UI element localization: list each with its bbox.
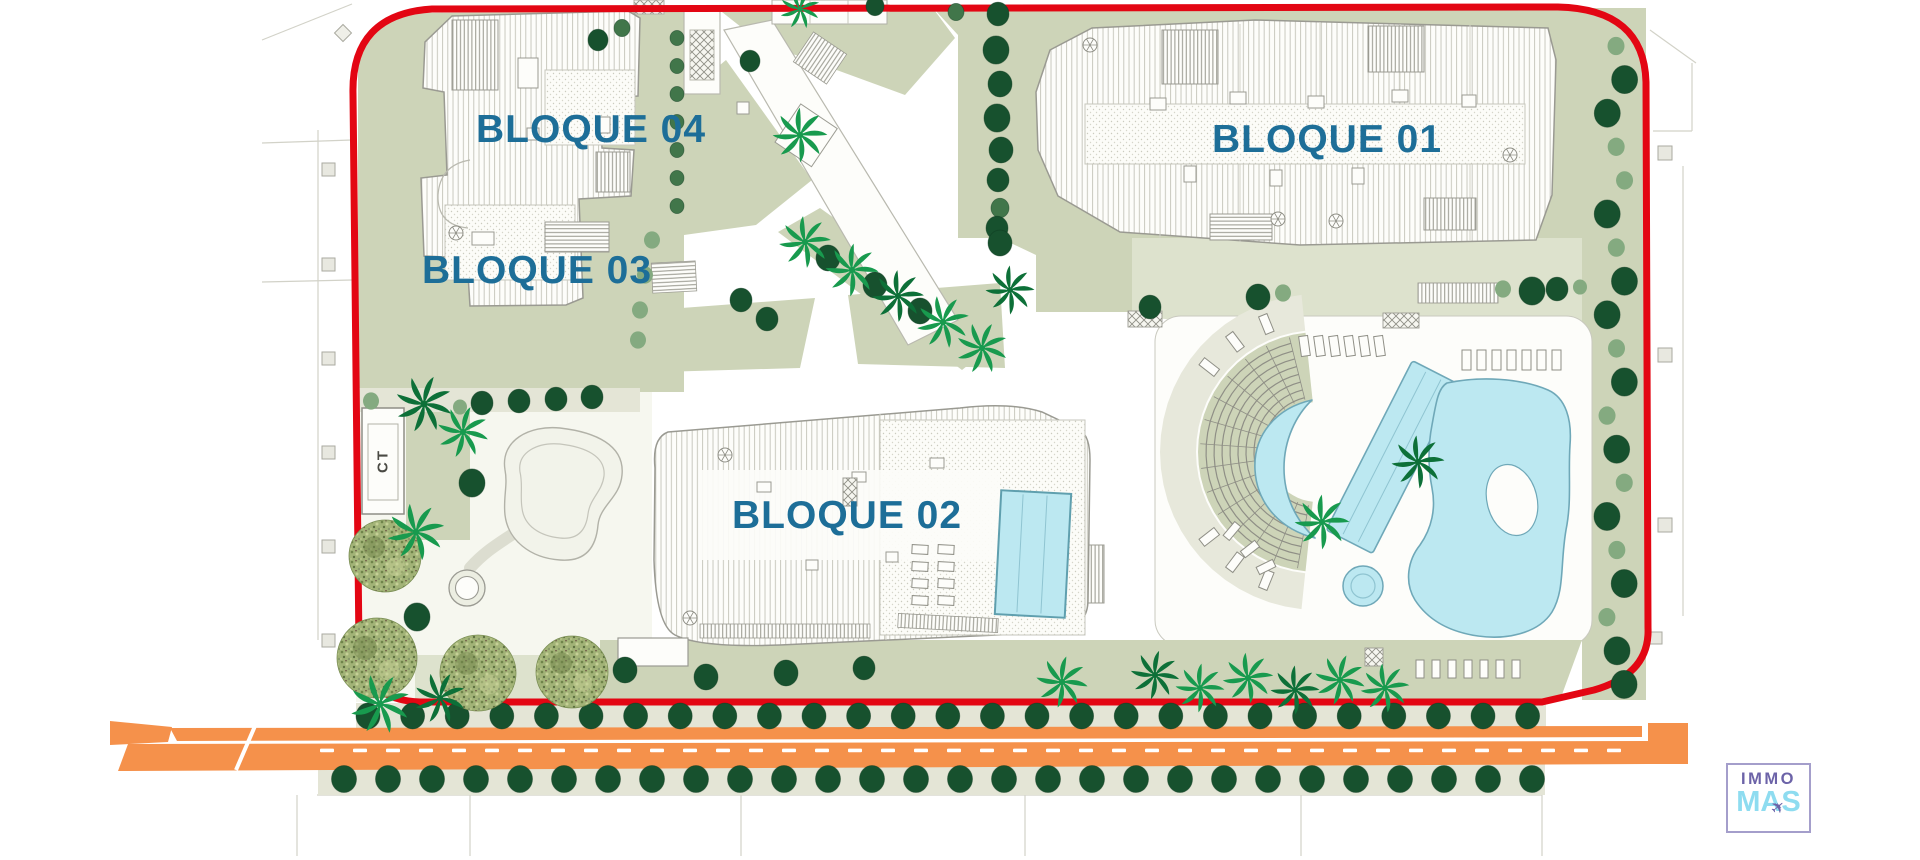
- tree-icon: [670, 170, 684, 185]
- tree-icon: [1025, 703, 1049, 729]
- tree-icon: [728, 766, 753, 793]
- spiral-stair: [683, 611, 697, 625]
- survey-square: [1658, 348, 1672, 362]
- tree-icon: [980, 703, 1004, 729]
- tree-icon: [1124, 766, 1149, 793]
- tree-icon: [579, 703, 603, 729]
- tree-icon: [1608, 541, 1625, 559]
- tree-icon: [1256, 766, 1281, 793]
- tree-icon: [1594, 99, 1620, 127]
- tree-icon: [1300, 766, 1325, 793]
- tree-icon: [670, 198, 684, 213]
- tree-icon: [632, 301, 648, 318]
- lane-dash: [1574, 749, 1588, 753]
- tree-icon: [644, 231, 660, 248]
- roof-box: [518, 58, 538, 88]
- tree-icon: [1594, 301, 1620, 329]
- survey-diamond: [335, 25, 352, 42]
- tree-icon: [1598, 608, 1615, 626]
- olive-tree-icon: [363, 536, 385, 558]
- west-stairs: [651, 261, 697, 293]
- tree-icon: [624, 703, 648, 729]
- tree-icon: [987, 168, 1009, 192]
- tree-icon: [1616, 474, 1633, 492]
- stairwell: [545, 222, 609, 252]
- tree-icon: [1608, 339, 1625, 357]
- tree-icon: [1426, 703, 1450, 729]
- sun-lounger: [1507, 350, 1516, 370]
- tree-icon: [1616, 171, 1633, 189]
- tree-icon: [908, 298, 932, 324]
- sun-lounger: [912, 562, 928, 572]
- lane-dash: [1211, 749, 1225, 753]
- tree-icon: [363, 392, 379, 409]
- lane-dash: [320, 749, 334, 753]
- tree-icon: [713, 703, 737, 729]
- lane-dash: [1607, 749, 1621, 753]
- lane-dash: [947, 749, 961, 753]
- tree-icon: [471, 391, 493, 415]
- sun-lounger: [1522, 350, 1531, 370]
- tree-icon: [670, 58, 684, 73]
- lane-dash: [1475, 749, 1489, 753]
- lane-dash: [1079, 749, 1093, 753]
- lane-dash: [518, 749, 532, 753]
- sun-lounger: [1416, 660, 1424, 678]
- tree-icon: [420, 766, 445, 793]
- survey-square: [1658, 518, 1672, 532]
- lane-dash: [1145, 749, 1159, 753]
- sun-lounger: [912, 579, 928, 589]
- tree-icon: [613, 657, 637, 683]
- tree-icon: [1573, 279, 1587, 294]
- survey-square: [1658, 146, 1672, 160]
- tree-icon: [1248, 703, 1272, 729]
- lane-dash: [650, 749, 664, 753]
- tree-icon: [1212, 766, 1237, 793]
- tree-icon: [453, 399, 467, 414]
- tree-icon: [1036, 766, 1061, 793]
- lane-dash: [1442, 749, 1456, 753]
- label-bloque-02: BLOQUE 02: [732, 496, 962, 535]
- spiral-stair: [449, 226, 463, 240]
- tree-icon: [936, 703, 960, 729]
- tree-icon: [614, 19, 630, 36]
- tree-icon: [684, 766, 709, 793]
- lane-dash: [1046, 749, 1060, 753]
- tree-icon: [816, 766, 841, 793]
- olive-tree-icon: [480, 675, 500, 695]
- lane-dash: [914, 749, 928, 753]
- spiral-stair: [718, 448, 732, 462]
- lane-dash: [749, 749, 763, 753]
- survey-square: [1650, 632, 1662, 644]
- tree-icon: [904, 766, 929, 793]
- road-stub-east: [1648, 723, 1688, 764]
- label-bloque-03: BLOQUE 03: [422, 251, 652, 290]
- sun-lounger: [912, 545, 928, 555]
- lane-dash: [1112, 749, 1126, 753]
- spiral-stair: [1271, 212, 1285, 226]
- tree-icon: [847, 703, 871, 729]
- tree-icon: [1612, 66, 1638, 94]
- tree-icon: [1275, 284, 1291, 301]
- tree-icon: [1604, 637, 1630, 665]
- survey-square: [322, 446, 335, 459]
- bloque-02-pool: [995, 490, 1071, 617]
- tree-icon: [983, 36, 1009, 64]
- sun-lounger: [1496, 660, 1504, 678]
- tree-icon: [668, 703, 692, 729]
- lane-dash: [1343, 749, 1357, 753]
- tree-icon: [1611, 570, 1637, 598]
- lane-dash: [1310, 749, 1324, 753]
- tree-icon: [891, 703, 915, 729]
- tree-icon: [989, 137, 1013, 163]
- label-bloque-04: BLOQUE 04: [476, 110, 706, 149]
- walkway-truss: [690, 30, 714, 80]
- tree-icon: [332, 766, 357, 793]
- tree-icon: [1246, 284, 1270, 310]
- lane-dash: [353, 749, 367, 753]
- lane-dash: [815, 749, 829, 753]
- tree-icon: [464, 766, 489, 793]
- tree-icon: [670, 86, 684, 101]
- tree-icon: [730, 288, 752, 312]
- olive-tree-icon: [337, 618, 417, 698]
- tree-icon: [1546, 277, 1568, 301]
- sun-lounger: [912, 596, 928, 606]
- tree-icon: [757, 703, 781, 729]
- tree-icon: [1495, 280, 1511, 297]
- sun-lounger: [1512, 660, 1520, 678]
- lane-dash: [848, 749, 862, 753]
- tree-icon: [740, 50, 760, 72]
- site-plan-drawing: [0, 0, 1920, 860]
- survey-square: [322, 352, 335, 365]
- tree-icon: [1070, 703, 1094, 729]
- lane-dash: [1277, 749, 1291, 753]
- sun-lounger: [938, 562, 954, 572]
- tree-icon: [508, 766, 533, 793]
- lane-dash: [1178, 749, 1192, 753]
- tree-icon: [984, 104, 1010, 132]
- tree-icon: [988, 230, 1012, 256]
- tree-icon: [1476, 766, 1501, 793]
- tree-icon: [1611, 267, 1637, 295]
- tree-icon: [1608, 138, 1625, 156]
- tree-icon: [802, 703, 826, 729]
- tree-icon: [670, 30, 684, 45]
- tree-icon: [816, 245, 840, 271]
- lane-dash: [980, 749, 994, 753]
- stairwell: [1162, 30, 1218, 84]
- tree-icon: [1516, 703, 1540, 729]
- stairwell: [1210, 214, 1272, 240]
- tree-icon: [1471, 703, 1495, 729]
- spiral-stair: [1503, 148, 1517, 162]
- tree-icon: [1594, 502, 1620, 530]
- tree-icon: [991, 198, 1009, 217]
- sun-lounger: [1537, 350, 1546, 370]
- sun-lounger: [1448, 660, 1456, 678]
- lane-dash: [452, 749, 466, 753]
- tree-icon: [756, 307, 778, 331]
- olive-tree-icon: [550, 652, 572, 674]
- tree-icon: [1382, 703, 1406, 729]
- lane-dash: [1409, 749, 1423, 753]
- pergola: [1365, 648, 1383, 666]
- tree-icon: [596, 766, 621, 793]
- tree-icon: [1114, 703, 1138, 729]
- sun-lounger: [1462, 350, 1471, 370]
- garden-patch-ct: [406, 396, 470, 540]
- lane-dash: [617, 749, 631, 753]
- tree-icon: [588, 29, 608, 51]
- olive-tree-icon: [379, 660, 400, 681]
- jacuzzi-pool: [1343, 566, 1383, 606]
- tree-icon: [640, 766, 665, 793]
- sun-lounger: [938, 596, 954, 606]
- lane-dash: [716, 749, 730, 753]
- survey-square: [322, 540, 335, 553]
- tree-icon: [1599, 406, 1616, 424]
- tree-icon: [853, 656, 875, 680]
- olive-tree-icon: [536, 636, 608, 708]
- tree-icon: [772, 766, 797, 793]
- tree-icon: [376, 766, 401, 793]
- pergola: [1418, 283, 1498, 303]
- tree-icon: [1344, 766, 1369, 793]
- site-plan-canvas: BLOQUE 01 BLOQUE 02 BLOQUE 03 BLOQUE 04 …: [0, 0, 1920, 860]
- tree-icon: [508, 389, 530, 413]
- sun-lounger: [1552, 350, 1561, 370]
- tree-icon: [1139, 295, 1161, 319]
- pergola: [1383, 313, 1419, 328]
- lane-dash: [485, 749, 499, 753]
- sun-lounger: [938, 545, 954, 555]
- tree-icon: [1611, 368, 1637, 396]
- label-ct: CT: [375, 449, 392, 473]
- sun-lounger: [1477, 350, 1486, 370]
- tree-icon: [1594, 200, 1620, 228]
- sun-lounger: [1464, 660, 1472, 678]
- tree-icon: [630, 331, 646, 348]
- tree-icon: [988, 71, 1012, 97]
- sun-lounger: [1492, 350, 1501, 370]
- tree-icon: [1080, 766, 1105, 793]
- tree-icon: [1608, 37, 1625, 55]
- road-ramp-west: [110, 721, 172, 745]
- stairwell: [700, 624, 870, 638]
- tree-icon: [545, 387, 567, 411]
- tree-icon: [404, 603, 430, 631]
- tree-icon: [581, 385, 603, 409]
- olive-tree-icon: [386, 557, 405, 576]
- survey-square: [322, 163, 335, 176]
- olive-tree-icon: [455, 652, 478, 675]
- immo-mas-logo: IMMO MAS ✈: [1726, 763, 1811, 833]
- survey-square: [322, 634, 335, 647]
- lane-dash: [1541, 749, 1555, 753]
- lane-dash: [1376, 749, 1390, 753]
- stairwell: [596, 152, 630, 192]
- sun-lounger: [938, 579, 954, 589]
- tree-icon: [552, 766, 577, 793]
- tree-icon: [774, 660, 798, 686]
- lane-dash: [1244, 749, 1258, 753]
- stairwell: [1368, 26, 1424, 72]
- olive-tree-icon: [353, 636, 377, 660]
- sun-lounger: [1432, 660, 1440, 678]
- lane-dash: [584, 749, 598, 753]
- tree-icon: [1519, 277, 1545, 305]
- tree-icon: [860, 766, 885, 793]
- lane-dash: [881, 749, 895, 753]
- boundary-markers-right: [1650, 146, 1672, 644]
- lane-dash: [386, 749, 400, 753]
- tree-icon: [1159, 703, 1183, 729]
- tree-icon: [534, 703, 558, 729]
- sun-lounger: [1480, 660, 1488, 678]
- boundary-markers-left: [322, 163, 335, 647]
- lane-dash: [782, 749, 796, 753]
- tree-icon: [1203, 703, 1227, 729]
- tree-icon: [1388, 766, 1413, 793]
- stairwell: [452, 20, 498, 90]
- tree-icon: [992, 766, 1017, 793]
- tree-icon: [1432, 766, 1457, 793]
- tree-icon: [459, 469, 485, 497]
- lane-dash: [1508, 749, 1522, 753]
- lane-dash: [683, 749, 697, 753]
- tree-icon: [948, 766, 973, 793]
- stairwell: [1424, 198, 1476, 230]
- lane-dash: [551, 749, 565, 753]
- tree-icon: [694, 664, 718, 690]
- tree-icon: [1337, 703, 1361, 729]
- tree-icon: [1604, 435, 1630, 463]
- tree-icon: [1168, 766, 1193, 793]
- plaza-vent: [737, 102, 749, 114]
- survey-square: [322, 258, 335, 271]
- spiral-stair: [1329, 214, 1343, 228]
- lane-dash: [1013, 749, 1027, 753]
- label-bloque-01: BLOQUE 01: [1212, 120, 1442, 159]
- tree-icon: [1611, 670, 1637, 698]
- tree-icon: [1520, 766, 1545, 793]
- tree-icon: [866, 0, 884, 16]
- lane-dash: [419, 749, 433, 753]
- tree-icon: [1608, 238, 1625, 256]
- olive-tree-icon: [573, 673, 592, 692]
- tree-icon: [987, 2, 1009, 26]
- tree-icon: [948, 3, 964, 20]
- spiral-stair: [1083, 38, 1097, 52]
- roof-box: [472, 232, 494, 245]
